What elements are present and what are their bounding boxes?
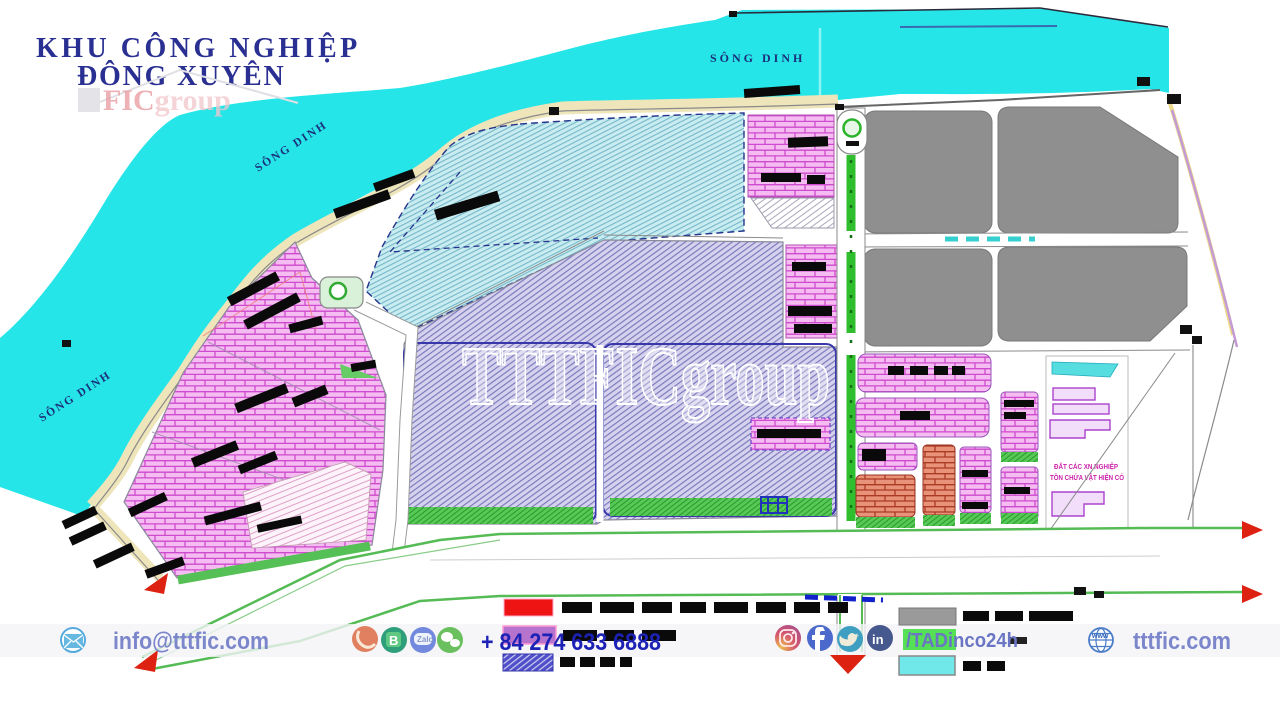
svg-text:KHU CÔNG NGHIỆP: KHU CÔNG NGHIỆP bbox=[36, 33, 361, 64]
svg-text:tttfic.com: tttfic.com bbox=[1133, 628, 1231, 655]
svg-text:Zalo: Zalo bbox=[417, 635, 434, 644]
svg-text:TTTFICgroup: TTTFICgroup bbox=[462, 330, 830, 423]
svg-text:+ 84 274 633 6888: + 84 274 633 6888 bbox=[481, 629, 661, 656]
svg-text:in: in bbox=[872, 632, 884, 647]
svg-text:info@tttfic.com: info@tttfic.com bbox=[113, 628, 269, 655]
svg-text:B: B bbox=[389, 633, 398, 648]
svg-text:SÔNG DINH: SÔNG DINH bbox=[710, 51, 805, 65]
svg-text:www: www bbox=[1091, 633, 1109, 640]
svg-text:/TADinco24h: /TADinco24h bbox=[906, 630, 1018, 652]
svg-text:FICgroup: FICgroup bbox=[103, 84, 231, 117]
